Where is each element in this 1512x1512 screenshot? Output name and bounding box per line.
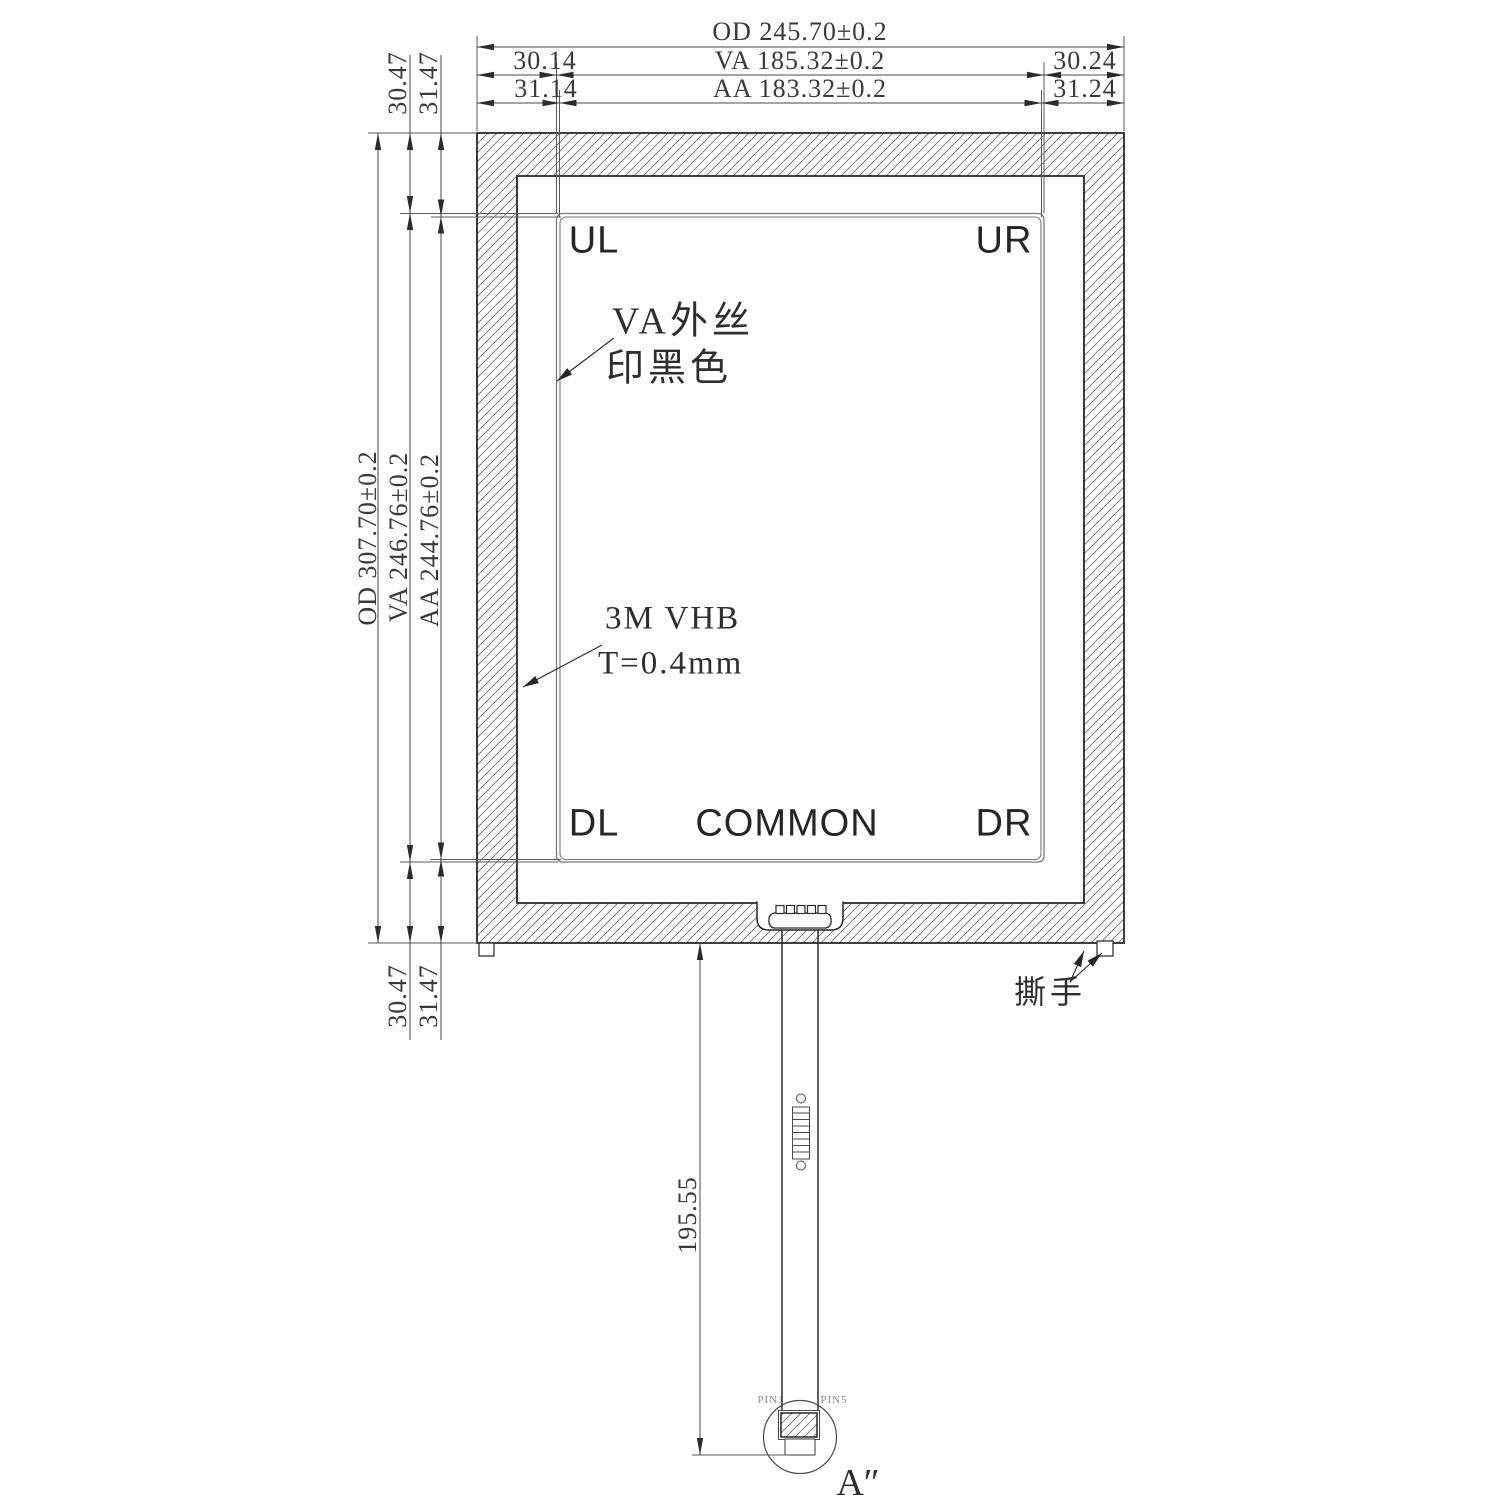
detail-view-a — [764, 1401, 837, 1474]
annotation-vhb-line1: 3M VHB — [605, 601, 740, 638]
dim-va-bottom-offset: 30.47 — [383, 964, 413, 1028]
dim-va-left-offset: 30.14 — [513, 46, 577, 76]
dim-va-right-offset: 30.24 — [1053, 46, 1117, 76]
label-down-left: DL — [569, 803, 620, 846]
dim-aa-width: AA 183.32±0.2 — [713, 74, 887, 104]
dim-va-width: VA 185.32±0.2 — [715, 46, 886, 76]
detail-lower-rect — [785, 1439, 815, 1455]
dim-od-width: OD 245.70±0.2 — [712, 17, 887, 47]
fpc-tail — [769, 906, 831, 1413]
annotation-vhb-line2: T=0.4mm — [598, 646, 743, 683]
label-pin1: PIN1 — [757, 1394, 784, 1406]
leader-vhb — [523, 645, 602, 687]
annotation-va-silk-line2: 印黑色 — [606, 337, 732, 392]
detail-hatched-pad — [781, 1413, 817, 1437]
tail-connector — [769, 913, 831, 928]
dim-aa-bottom-offset: 31.47 — [414, 964, 444, 1028]
dim-od-height: OD 307.70±0.2 — [353, 450, 383, 625]
label-common: COMMON — [695, 803, 878, 846]
label-detail-a: A″ — [836, 1461, 879, 1505]
label-upper-left: UL — [569, 220, 620, 263]
label-down-right: DR — [976, 803, 1033, 846]
dim-va-height: VA 246.76±0.2 — [384, 452, 414, 623]
dim-aa-left-offset: 31.14 — [514, 74, 578, 104]
tear-tab-shape — [1097, 941, 1113, 956]
bottom-left-tab — [479, 943, 494, 956]
drawing-canvas — [0, 0, 1512, 1512]
label-upper-right: UR — [976, 220, 1033, 263]
dim-aa-height: AA 244.76±0.2 — [415, 453, 445, 627]
connector-pads — [776, 906, 826, 914]
dim-tail-length: 195.55 — [673, 1176, 703, 1254]
label-pin5: PIN5 — [820, 1394, 847, 1406]
dim-aa-right-offset: 31.24 — [1053, 74, 1117, 104]
dim-va-top-offset: 30.47 — [383, 51, 413, 115]
engineering-drawing: OD 245.70±0.2 30.14 VA 185.32±0.2 30.24 … — [0, 0, 1512, 1512]
tail-stiffener — [793, 1094, 810, 1170]
annotation-tear-tab: 撕手 — [1014, 967, 1086, 1013]
dim-aa-top-offset: 31.47 — [414, 51, 444, 115]
